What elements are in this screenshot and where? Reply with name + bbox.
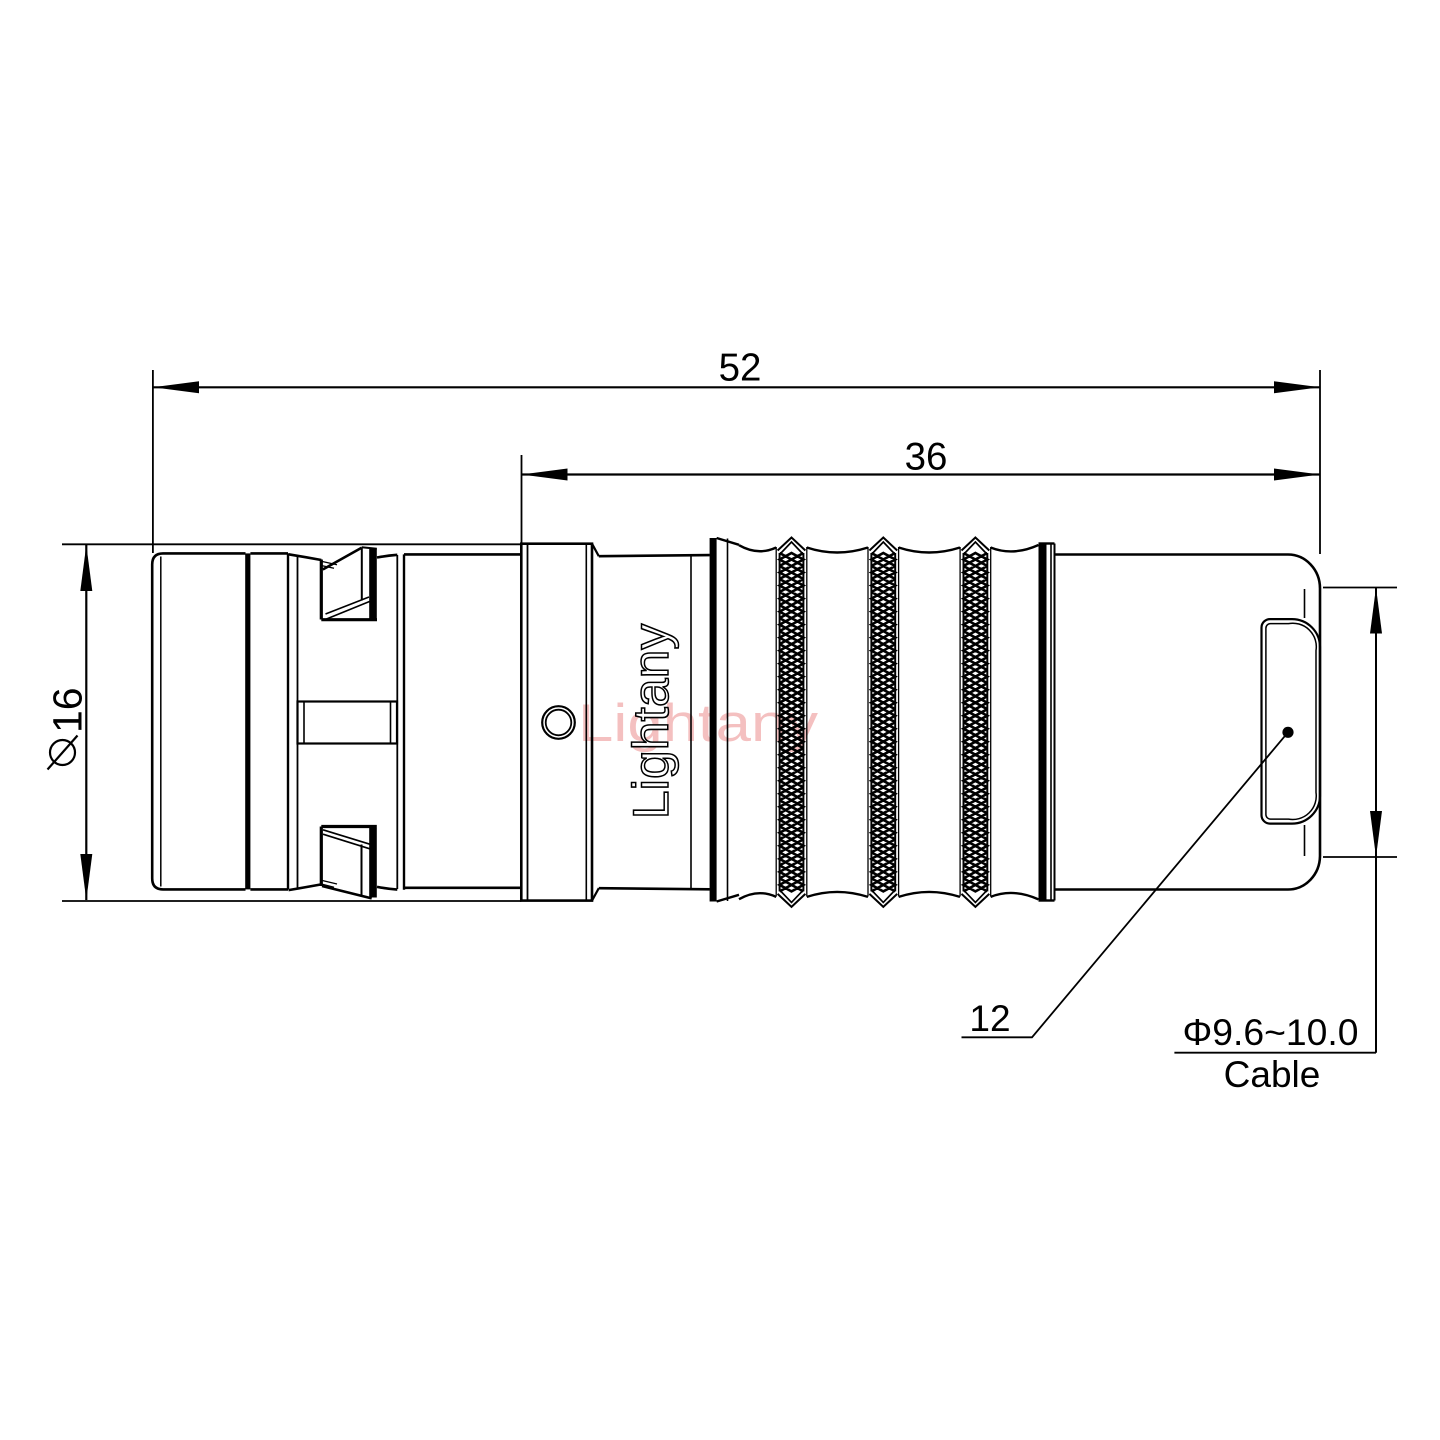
svg-text:Lightany: Lightany [623, 624, 679, 820]
svg-text:Cable: Cable [1224, 1054, 1321, 1095]
svg-text:36: 36 [905, 436, 948, 479]
svg-text:12: 12 [969, 998, 1010, 1039]
svg-text:16: 16 [45, 687, 91, 733]
svg-text:Φ9.6~10.0: Φ9.6~10.0 [1183, 1012, 1359, 1053]
svg-text:52: 52 [719, 347, 762, 390]
